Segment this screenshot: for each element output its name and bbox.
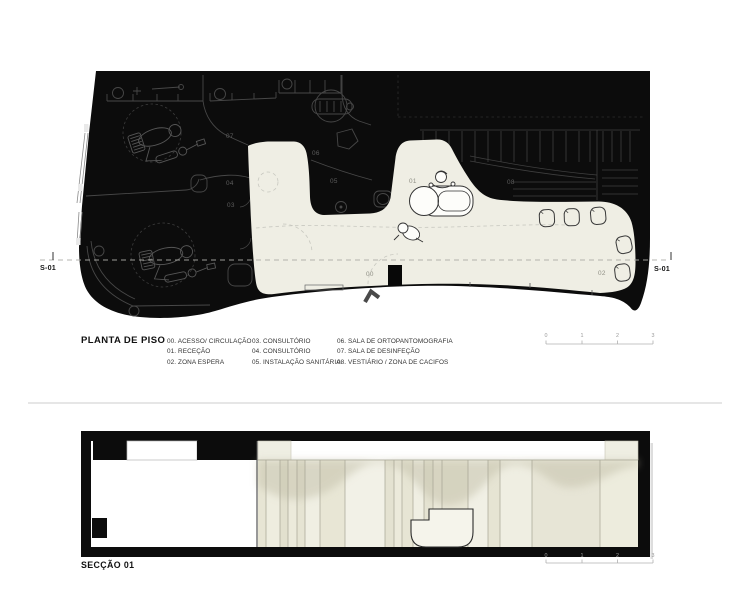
- scale-ticks: [546, 341, 653, 345]
- scale-ticks: [546, 560, 653, 564]
- plan-scale-2: 2: [616, 333, 619, 339]
- reception-desk: [410, 186, 474, 216]
- ceiling-panel-cream: [605, 441, 638, 460]
- room-label-06: 06: [312, 150, 320, 157]
- entrance-door-leaf: [388, 265, 402, 286]
- ceiling-block: [93, 441, 127, 460]
- legend-item-05: 05. INSTALAÇÃO SANITÁRIA: [252, 359, 341, 366]
- room-label-02: 02: [598, 270, 606, 277]
- legend-item-00: 00. ACESSO/ CIRCULAÇÃO: [167, 338, 252, 345]
- panel: [500, 460, 532, 547]
- person-hand: [451, 182, 455, 186]
- drawing-graphics: [0, 0, 750, 600]
- legend-item-03: 03. CONSULTÓRIO: [252, 338, 311, 345]
- room-label-00: 00: [366, 271, 374, 278]
- legend-item-06: 06. SALA DE ORTOPANTOMOGRAFIA: [337, 338, 453, 345]
- desk-round-end: [410, 187, 439, 216]
- legend-item-08: 08. VESTIÁRIO / ZONA DE CACIFOS: [337, 359, 448, 366]
- panel: [385, 460, 394, 547]
- room-label-07: 07: [226, 133, 234, 140]
- room-label-03: 03: [227, 202, 235, 209]
- window-sill: [84, 124, 89, 132]
- legend-item-04: 04. CONSULTÓRIO: [252, 348, 311, 355]
- section-drawing: [81, 431, 653, 563]
- section-shadow-right: [651, 443, 654, 559]
- floor-drain-dot: [340, 206, 342, 208]
- section-marker-right: S-01: [654, 264, 670, 273]
- architectural-drawing-sheet: PLANTA DE PISO 00. ACESSO/ CIRCULAÇÃO 01…: [0, 0, 750, 600]
- section-scale-3: 3: [652, 553, 655, 559]
- legend-item-01: 01. RECEÇÃO: [167, 348, 210, 355]
- ceiling-panel-cream: [258, 441, 291, 460]
- section-marker-left: S-01: [40, 263, 56, 272]
- room-label-01: 01: [409, 178, 417, 185]
- plan-scale-bar: [546, 341, 653, 345]
- legend-item-02: 02. ZONA ESPERA: [167, 359, 224, 366]
- section-scale-0: 0: [545, 553, 548, 559]
- room-label-08: 08: [507, 179, 515, 186]
- ceiling-block: [197, 441, 257, 460]
- section-black-plinth: [92, 518, 107, 538]
- plan-scale-1: 1: [581, 333, 584, 339]
- panel: [394, 460, 402, 547]
- plan-scale-0: 0: [545, 333, 548, 339]
- section-title: SECÇÃO 01: [81, 560, 134, 570]
- section-scale-bar: [546, 560, 653, 564]
- plan-scale-3: 3: [652, 333, 655, 339]
- window-sill: [76, 238, 81, 245]
- section-scale-1: 1: [581, 553, 584, 559]
- legend-item-07: 07. SALA DE DESINFEÇÃO: [337, 348, 420, 355]
- person-head: [398, 223, 408, 233]
- ceiling-void: [127, 441, 197, 460]
- floor-plan: [40, 71, 671, 344]
- room-label-04: 04: [226, 180, 234, 187]
- plan-title: PLANTA DE PISO: [81, 335, 165, 346]
- section-scale-2: 2: [616, 553, 619, 559]
- person-hand: [429, 183, 433, 187]
- window-sill: [78, 184, 83, 191]
- room-label-05: 05: [330, 178, 338, 185]
- entrance-arrow: [365, 292, 379, 303]
